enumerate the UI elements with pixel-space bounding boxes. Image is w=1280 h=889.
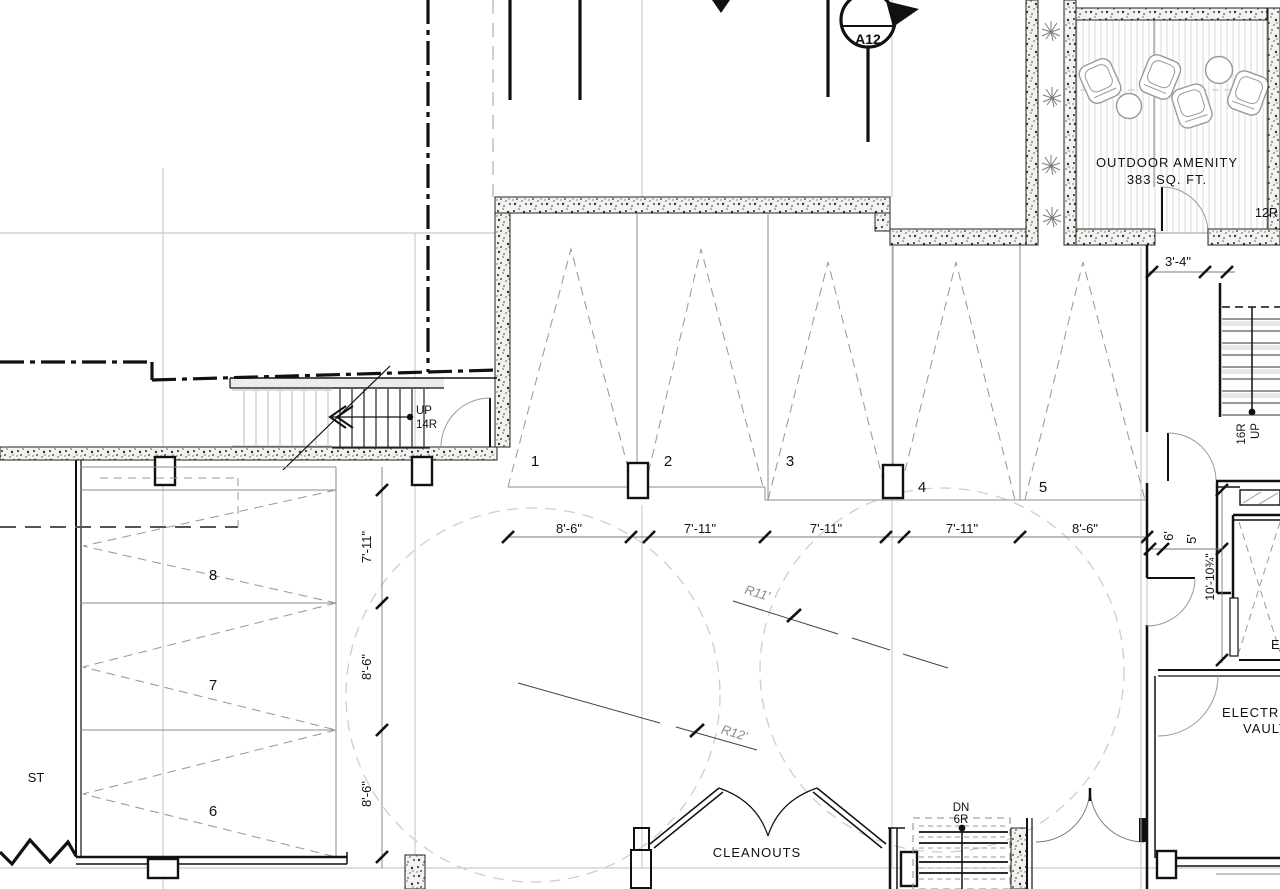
stair-up-label: UP [1250,423,1262,439]
stair-riser-count: 14R [416,419,437,431]
stair-up-16r: 16R UP [1220,283,1280,445]
radius-leaders: R11' R12' [518,582,948,750]
stair-riser-count: 16R [1236,423,1248,444]
column [628,463,648,498]
stall-number: 7 [209,677,217,694]
entry-dimension: 3'-4" [1146,254,1235,278]
amenity-riser-note: 12R [1255,206,1278,220]
elevator-label-stub: E [1271,637,1280,652]
plant-icon [1043,87,1061,107]
stall-number: 2 [664,453,672,470]
round-table [1206,57,1233,84]
entry-width: 3'-4" [1165,254,1191,269]
stall-number: 6 [209,803,217,820]
radius-dimension: R11' [743,582,772,604]
amenity-top-wall [1076,8,1267,20]
door-swing [1147,578,1195,626]
column [1157,851,1176,878]
stair-riser-count: 6R [954,814,969,826]
stair-down-label: DN [953,802,970,814]
stall-width: 7'-11" [946,521,979,536]
clear-dimension: 6' [1161,531,1176,541]
turning-radius-circles [346,488,1124,882]
break-line-icon [0,840,76,864]
stall-width-dimension-line: 8'-6" 7'-11" 7'-11" 7'-11" 8'-6" [502,521,1153,543]
marker-arrow-icon [712,0,730,13]
stair-up-label: UP [416,405,432,417]
stair-dn-6r: DN 6R [888,802,1032,889]
property-line [0,0,497,380]
section-marker-a12: A12 [841,0,919,47]
elevator-depth-dimension: 10'-10¾" [1203,553,1217,600]
stall-width: 7'-11" [359,531,374,564]
overhead-lines [510,0,868,142]
stall-width: 8'-6" [556,521,582,536]
garage-walls [0,197,1280,889]
parking-left-stalls: 8 7 6 7'-11" 8'-6" 8'-6" ST [0,460,388,868]
door-swing [1168,433,1216,481]
stair-door-swing [441,398,490,447]
stall-number: 1 [531,453,539,470]
floor-plan-canvas: A12 OUTDOOR AMENITY 383 SQ. FT. 12R [0,0,1280,889]
vault-door-swing [1158,676,1218,736]
bottom-left-walls [0,840,347,878]
right-core: 16R UP 3'-4" E [1141,245,1280,889]
garage-double-doors [1036,788,1147,842]
street-label: ST [28,770,45,785]
column [901,852,917,886]
column [883,465,903,498]
stall-width: 7'-11" [684,521,717,536]
outdoor-amenity-terrace: OUTDOOR AMENITY 383 SQ. FT. 12R [1076,8,1280,245]
round-table [1117,94,1142,119]
stall-number: 8 [209,567,217,584]
electric-vault-label: VAULT [1243,721,1280,736]
cleanout-doors: CLEANOUTS [631,788,886,888]
amenity-area: 383 SQ. FT. [1127,172,1207,187]
plant-icon [1043,207,1061,227]
planting-beds [1026,0,1076,245]
electric-vault-label: ELECTRIC [1222,705,1280,720]
elevator-shaft: E [1230,515,1280,660]
corridor-dimensions: 6' 5' 10'-10¾" [1144,484,1228,666]
column [148,859,178,878]
plant-icon [1042,21,1060,41]
cleanouts-label: CLEANOUTS [713,845,801,860]
section-arrow-icon [886,1,919,27]
amenity-deck [1076,20,1267,233]
stall-width: 8'-6" [1072,521,1098,536]
door-swing [768,788,817,836]
stall-width: 7'-11" [810,521,843,536]
door-swing [719,788,768,836]
stall-number: 4 [918,479,926,496]
clear-dimension: 5' [1184,534,1199,544]
parking-top-stalls: 1 2 3 4 5 8'-6" 7'-11" 7'-11" 7'-11" 8'-… [502,213,1153,543]
stall-number: 5 [1039,479,1047,496]
plant-icon [1042,155,1060,175]
stall-number: 3 [786,453,794,470]
stall-width: 8'-6" [359,781,374,807]
amenity-title: OUTDOOR AMENITY [1096,155,1238,170]
stall-width: 8'-6" [359,654,374,680]
section-marker-label: A12 [855,31,881,47]
electric-vault: ELECTRIC VAULT [1147,668,1280,889]
